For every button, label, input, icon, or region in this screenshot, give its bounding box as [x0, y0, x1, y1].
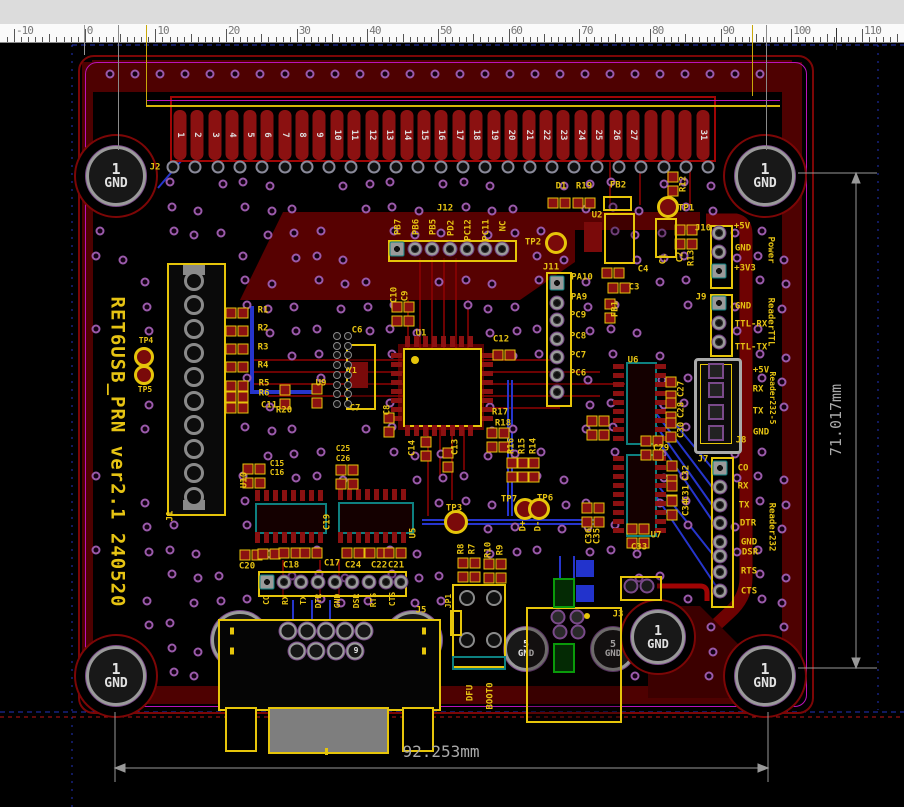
pcb-editor-canvas[interactable]: 1234567891011121314151617181920212223242… [0, 0, 904, 807]
guide-gray-left-hole [118, 25, 119, 150]
guide-gray-right-hole [766, 25, 767, 150]
guide-lines [0, 0, 904, 807]
guide-gray-0mm [84, 25, 85, 55]
guide-yellow-left [146, 25, 147, 105]
guide-yellow-right [752, 25, 753, 96]
guide-dark-tick [836, 28, 837, 50]
